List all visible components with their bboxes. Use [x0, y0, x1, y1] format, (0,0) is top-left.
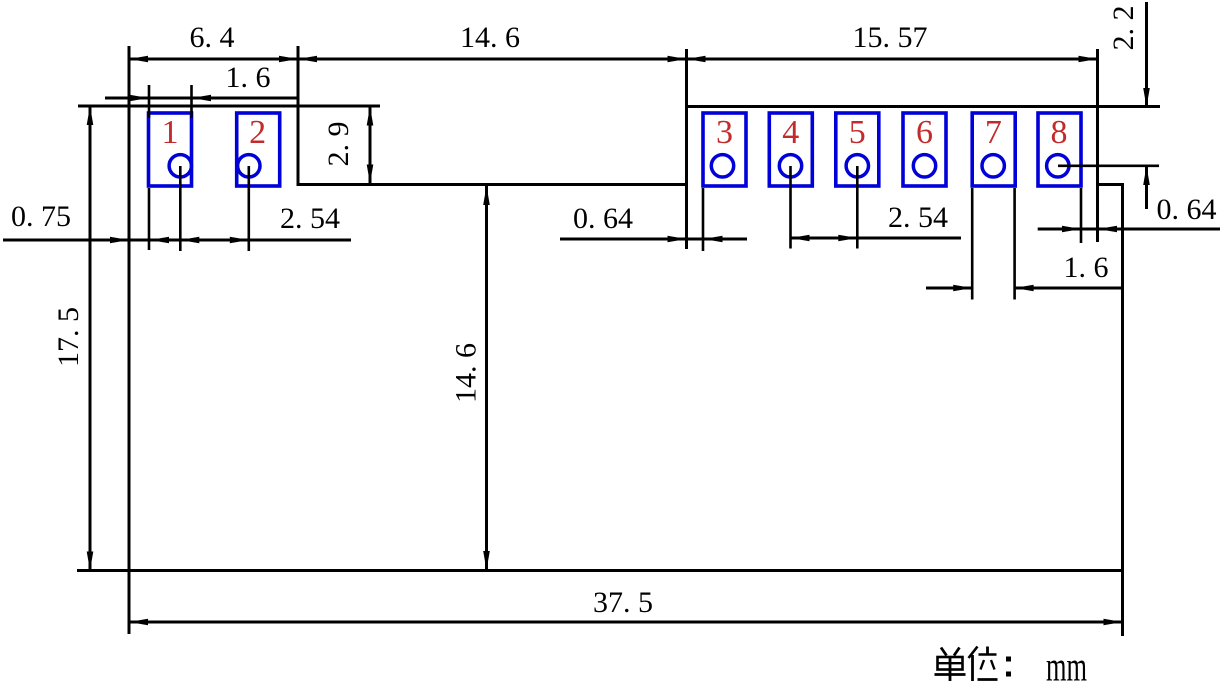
svg-text:2: 2 — [249, 114, 266, 151]
svg-text:3: 3 — [716, 114, 733, 151]
svg-text:2. 9: 2. 9 — [322, 122, 355, 167]
svg-text:14. 6: 14. 6 — [460, 21, 520, 54]
svg-text:7: 7 — [985, 114, 1002, 151]
svg-text:6: 6 — [916, 114, 933, 151]
svg-text:6. 4: 6. 4 — [190, 21, 235, 54]
svg-text:2. 2: 2. 2 — [1107, 6, 1140, 51]
svg-text:4: 4 — [782, 114, 799, 151]
svg-text:1. 6: 1. 6 — [1064, 251, 1109, 284]
svg-text:37. 5: 37. 5 — [593, 586, 653, 619]
svg-text:0. 64: 0. 64 — [1157, 193, 1217, 226]
svg-text:2. 54: 2. 54 — [888, 201, 948, 234]
svg-text:2. 54: 2. 54 — [280, 202, 340, 235]
svg-text:8: 8 — [1051, 114, 1068, 151]
svg-text:14. 6: 14. 6 — [450, 343, 483, 403]
svg-text:0. 75: 0. 75 — [11, 200, 71, 233]
svg-text:1. 6: 1. 6 — [226, 61, 271, 94]
svg-text:5: 5 — [849, 114, 866, 151]
svg-text:1: 1 — [162, 114, 179, 151]
svg-text:0. 64: 0. 64 — [573, 202, 633, 235]
svg-text:17. 5: 17. 5 — [52, 307, 85, 367]
svg-text:15. 57: 15. 57 — [853, 21, 928, 54]
svg-text:mm: mm — [1046, 645, 1087, 691]
